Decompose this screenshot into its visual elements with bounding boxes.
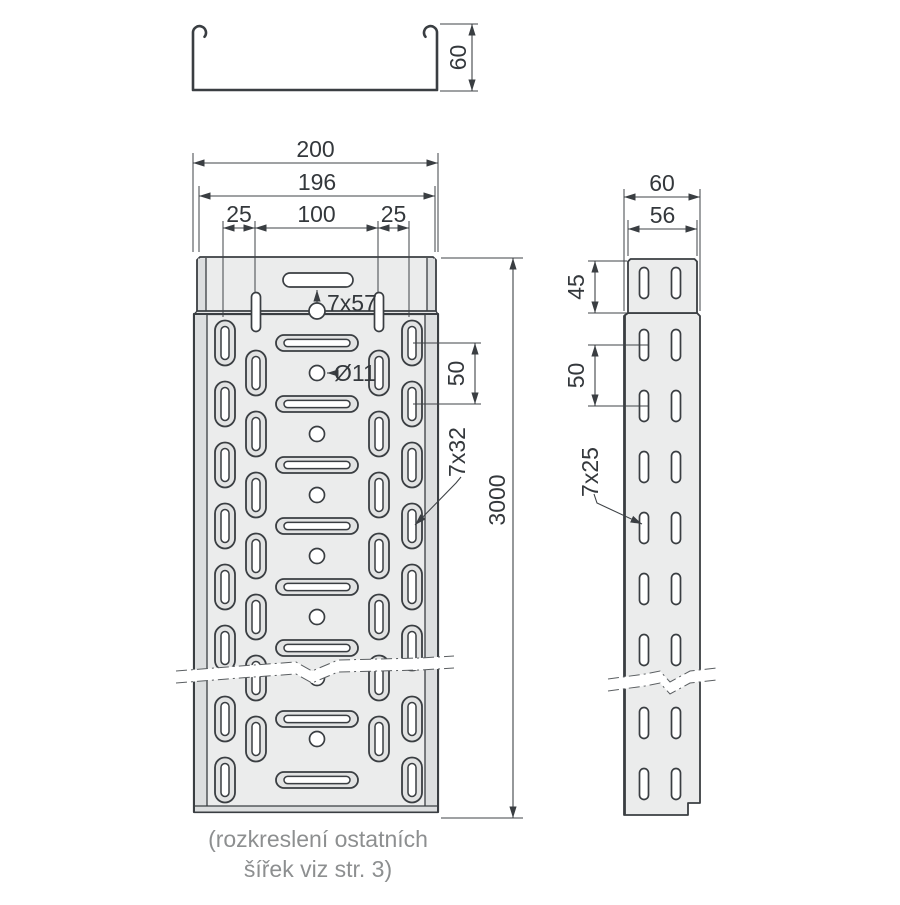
- inner-slot-right: [369, 412, 389, 457]
- center-hole: [310, 549, 325, 564]
- outer-slot-left: [215, 382, 235, 427]
- side-slot-left: [640, 513, 649, 544]
- end-slot-size-label: 7x57: [327, 290, 377, 316]
- center-horizontal-slot: [276, 640, 358, 656]
- center-hole: [310, 732, 325, 747]
- side-slot-right: [672, 513, 681, 544]
- outer-slot-left: [215, 758, 235, 803]
- step-slot-left: [252, 293, 261, 332]
- front-view: 200 196 25 100 25 7x57 Ø11: [176, 136, 523, 818]
- outer-slot-left: [215, 626, 235, 671]
- side-slot-right: [672, 708, 681, 739]
- end-connector-slot: [283, 273, 353, 287]
- side-slot-left: [640, 452, 649, 483]
- outer-slot-right: [402, 565, 422, 610]
- inner-slot-left: [246, 534, 266, 579]
- center-horizontal-slot: [276, 335, 358, 351]
- technical-drawing-page: 60 200: [0, 0, 900, 900]
- side-end-slot-right: [672, 268, 681, 299]
- side-slot-left: [640, 574, 649, 605]
- inner-slot-left: [246, 351, 266, 396]
- side-slot-left: [640, 635, 649, 666]
- center-hole: [310, 366, 325, 381]
- front-slot-size-label: 7x32: [444, 427, 470, 477]
- center-hole: [310, 427, 325, 442]
- end-hem-left: [198, 259, 206, 311]
- dim-cross-height: 60: [440, 24, 478, 91]
- center-hole: [310, 610, 325, 625]
- dim-side-row-pitch-label: 50: [563, 363, 589, 389]
- outer-slot-right: [402, 443, 422, 488]
- inner-slot-left: [246, 595, 266, 640]
- dim-center-spacing-label: 100: [297, 201, 335, 227]
- side-slot-right: [672, 574, 681, 605]
- dim-side-end-section: 45: [563, 261, 627, 313]
- dim-offset-right-label: 25: [381, 201, 407, 227]
- inner-slot-right: [369, 534, 389, 579]
- dim-front-width-label: 200: [296, 136, 334, 162]
- inner-slot-right: [369, 717, 389, 762]
- dim-cross-height-label: 60: [445, 45, 471, 71]
- outer-slot-left: [215, 504, 235, 549]
- side-wall-left: [195, 315, 207, 806]
- side-wall-right: [425, 315, 437, 806]
- side-slot-size-label: 7x25: [577, 447, 603, 497]
- label-hole-dia: Ø11: [327, 360, 376, 386]
- inner-slot-left: [246, 656, 266, 701]
- side-slot-right: [672, 452, 681, 483]
- center-horizontal-slot: [276, 711, 358, 727]
- inner-slot-right: [369, 473, 389, 518]
- side-slot-right: [672, 769, 681, 800]
- channel-profile: [193, 26, 437, 90]
- inner-slot-right: [369, 595, 389, 640]
- cable-tray-drawing: 60 200: [0, 0, 900, 900]
- center-horizontal-slot: [276, 772, 358, 788]
- inner-slot-left: [246, 717, 266, 762]
- outer-slot-left: [215, 443, 235, 488]
- outer-slot-left: [215, 565, 235, 610]
- side-slot-right: [672, 330, 681, 361]
- dim-side-height-label: 60: [649, 170, 675, 196]
- dim-offset-left-label: 25: [226, 201, 252, 227]
- center-horizontal-slot: [276, 579, 358, 595]
- side-slot-right: [672, 635, 681, 666]
- outer-slot-right: [402, 504, 422, 549]
- dim-front-length-label: 3000: [484, 474, 510, 525]
- dim-front-body-width-label: 196: [298, 169, 336, 195]
- outer-slot-left: [215, 321, 235, 366]
- inner-slot-left: [246, 473, 266, 518]
- side-slot-left: [640, 708, 649, 739]
- inner-slot-left: [246, 412, 266, 457]
- center-horizontal-slot: [276, 457, 358, 473]
- dim-side-end-height-label: 56: [650, 202, 676, 228]
- end-leader-hole: [309, 303, 325, 319]
- cross-section-view: 60: [193, 24, 478, 91]
- bottom-fold: [195, 806, 437, 812]
- end-hem-right: [427, 259, 435, 311]
- side-rail-body: [624, 313, 700, 815]
- side-end-section: [628, 259, 697, 313]
- side-end-slot-left: [640, 268, 649, 299]
- side-slot-left: [640, 769, 649, 800]
- dim-front-row-pitch-label: 50: [443, 361, 469, 387]
- outer-slot-right: [402, 697, 422, 742]
- side-slot-right: [672, 391, 681, 422]
- dim-side-end-height: 56: [628, 202, 697, 256]
- center-horizontal-slot: [276, 518, 358, 534]
- center-horizontal-slot: [276, 396, 358, 412]
- side-view: 60 56 45 50 7x25: [563, 170, 717, 815]
- dim-side-end-section-label: 45: [563, 274, 589, 300]
- outer-slot-left: [215, 697, 235, 742]
- outer-slot-right: [402, 758, 422, 803]
- caption-line-2: šířek viz str. 3): [244, 856, 392, 882]
- dim-front-length: 3000: [441, 258, 523, 818]
- center-hole: [310, 488, 325, 503]
- caption-line-1: (rozkreslení ostatních: [208, 826, 428, 852]
- hole-dia-label: Ø11: [334, 360, 376, 386]
